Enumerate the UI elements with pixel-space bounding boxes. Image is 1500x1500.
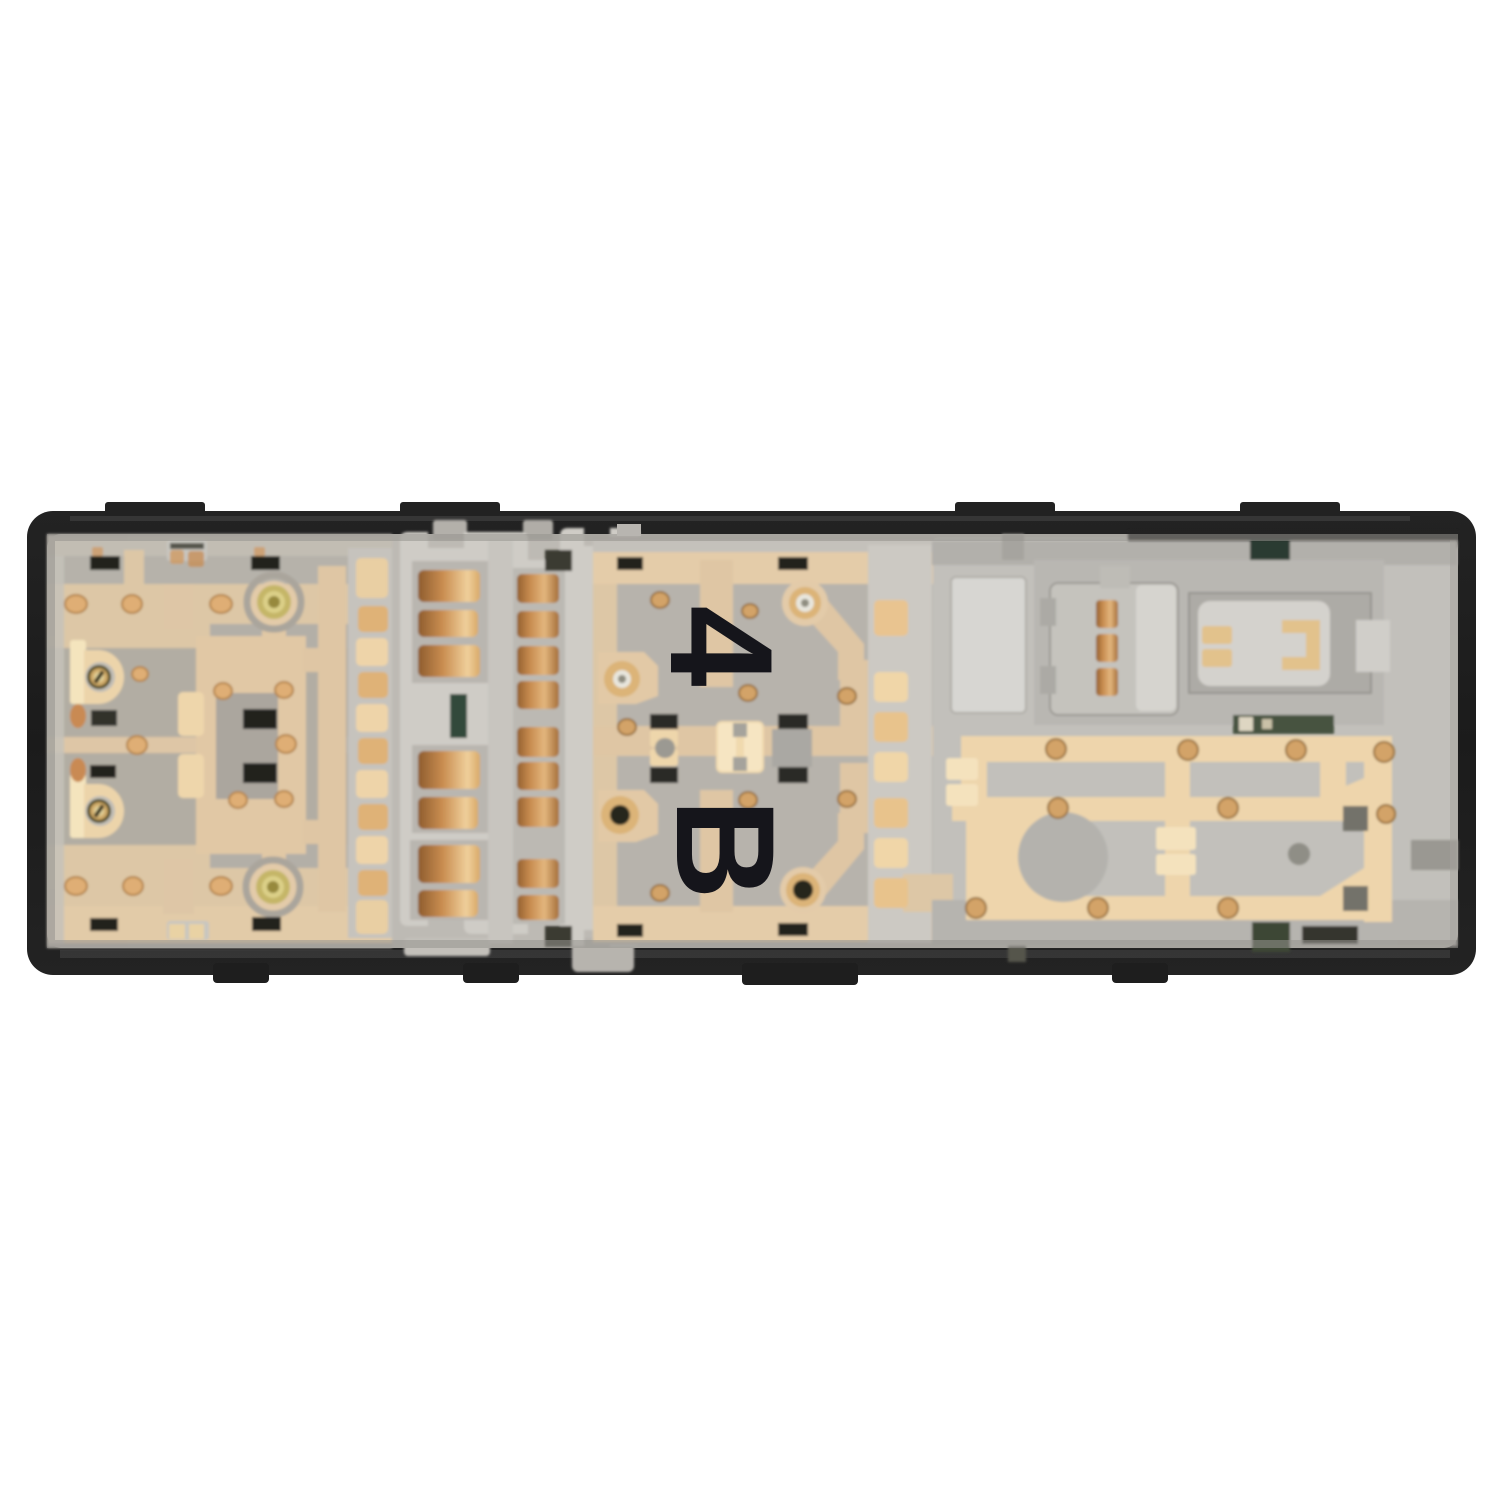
svg-text:4: 4: [640, 605, 803, 686]
svg-text:B: B: [647, 798, 804, 899]
